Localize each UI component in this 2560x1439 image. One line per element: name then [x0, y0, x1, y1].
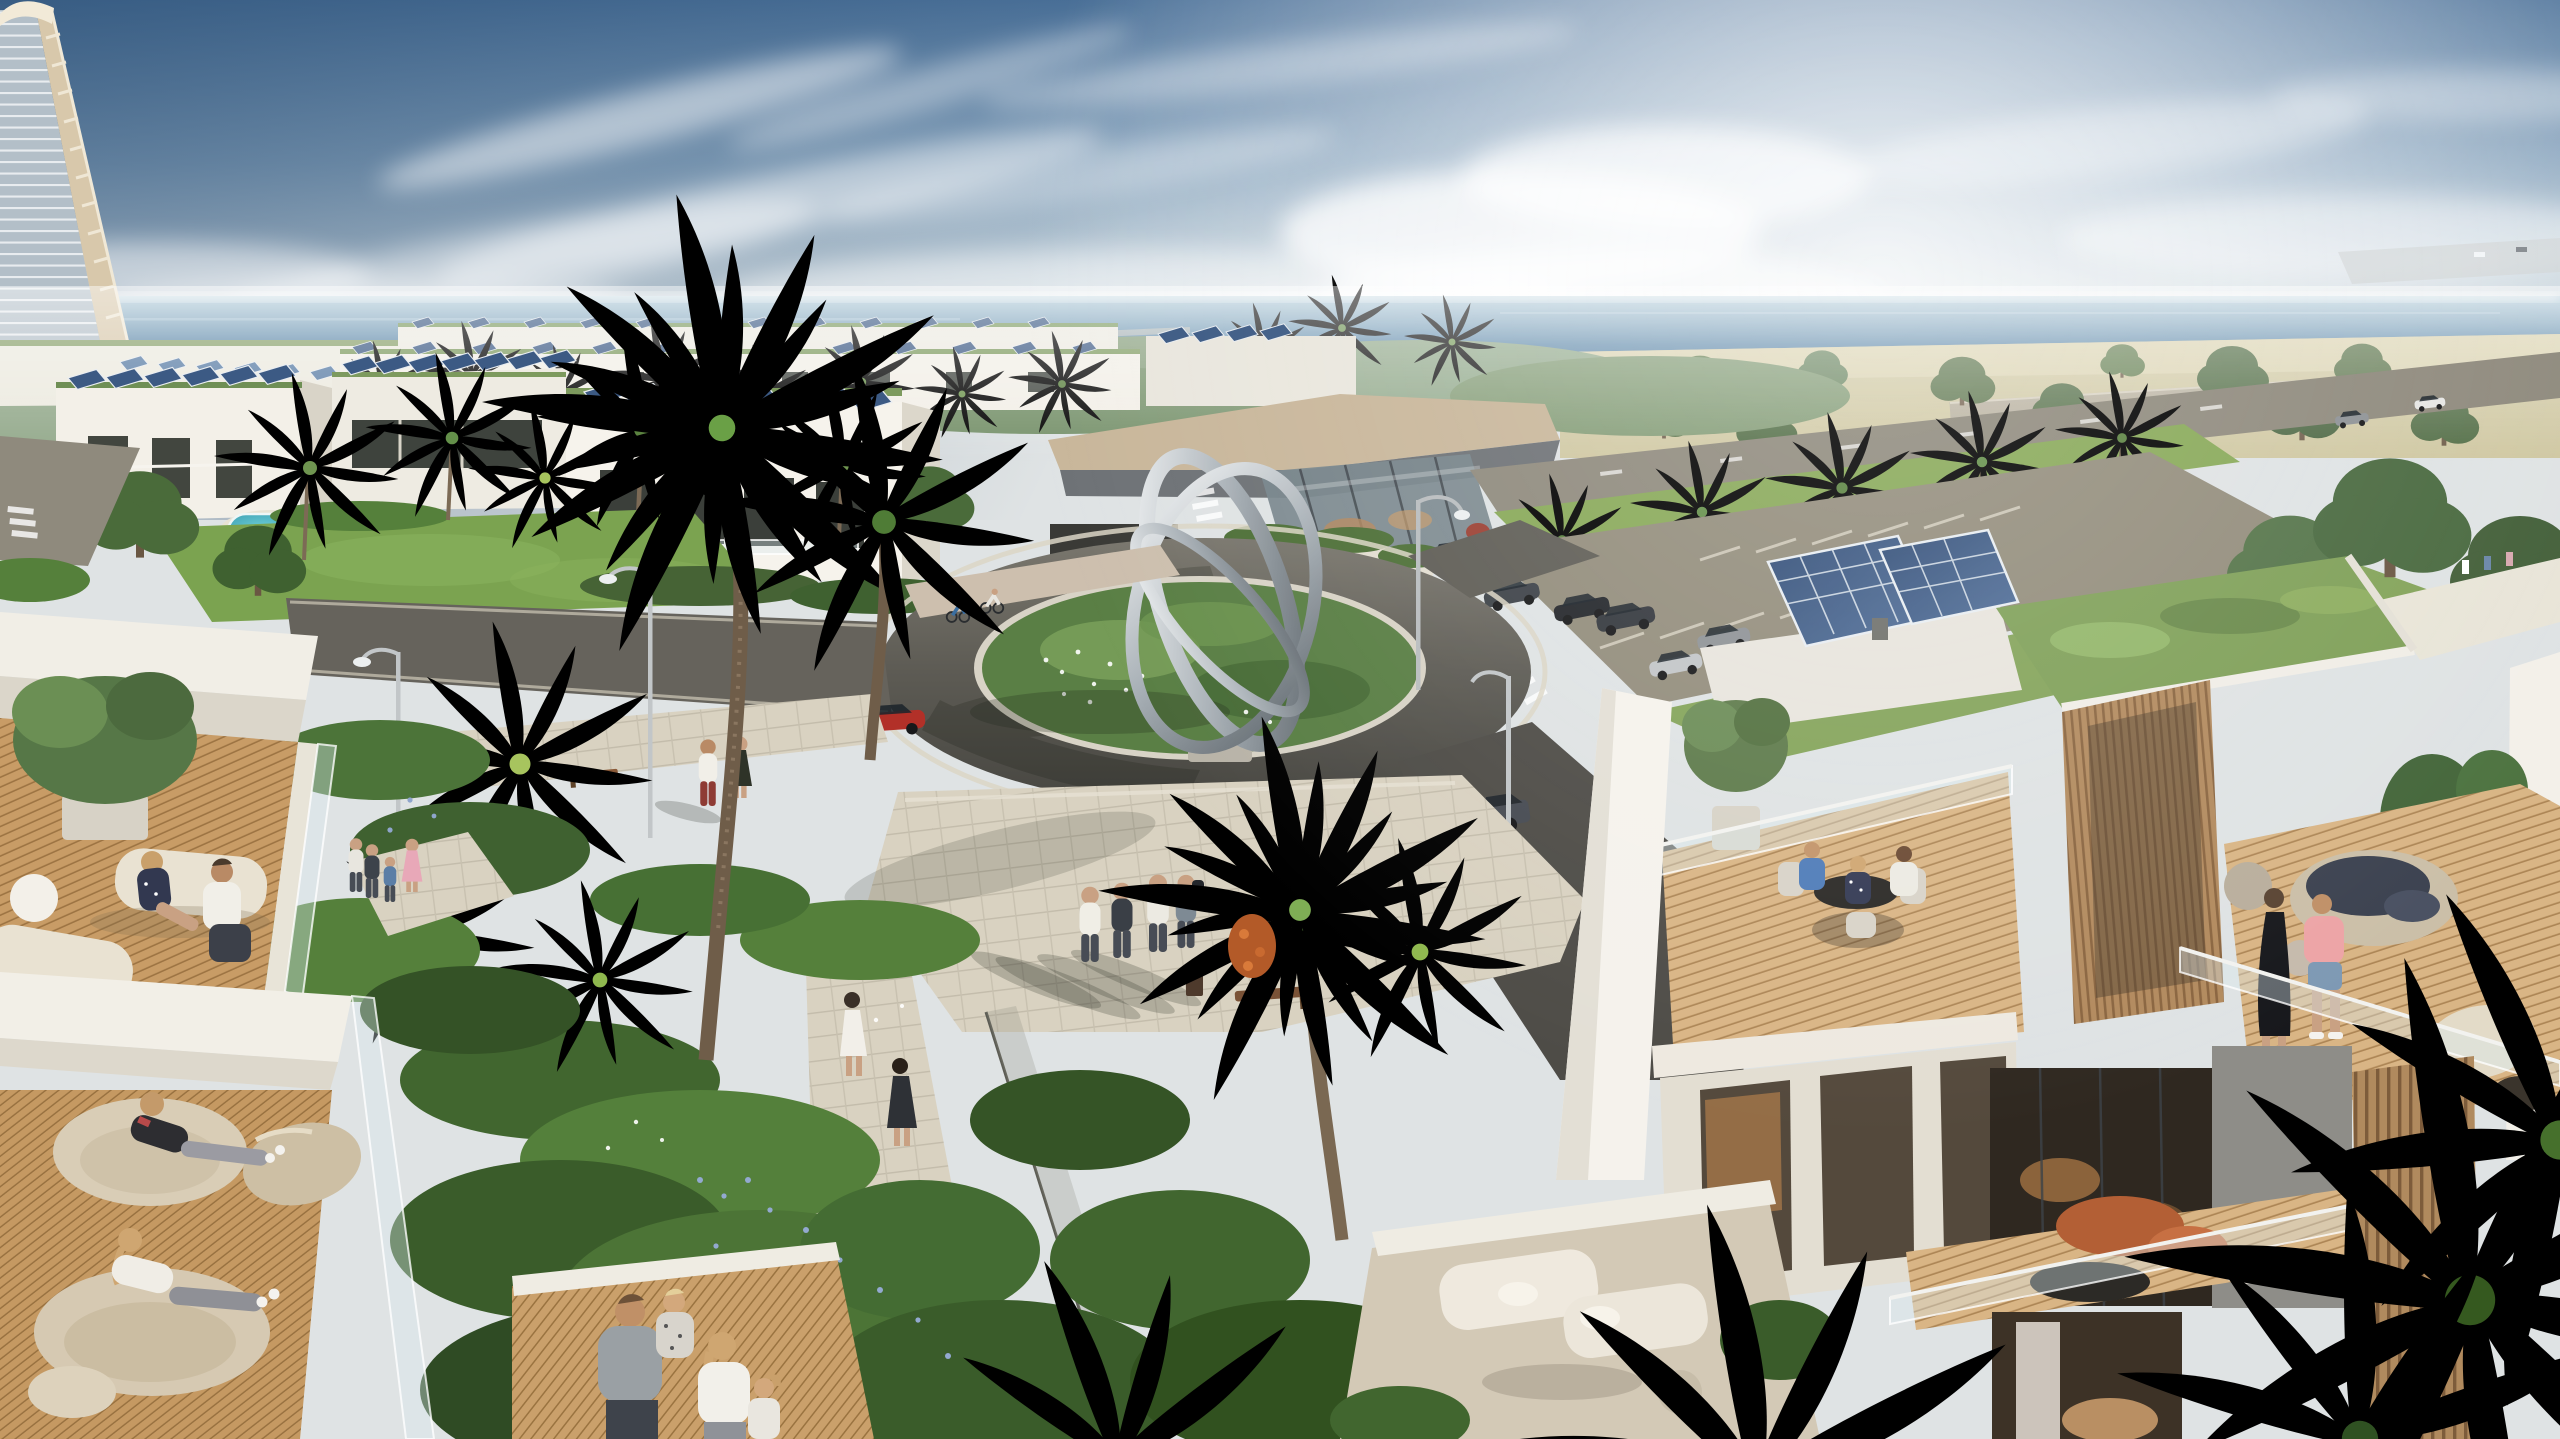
rendered-image: [0, 0, 2560, 1439]
villa-community-render: [0, 0, 2560, 1439]
sunlight-overlay: [0, 0, 2560, 1439]
